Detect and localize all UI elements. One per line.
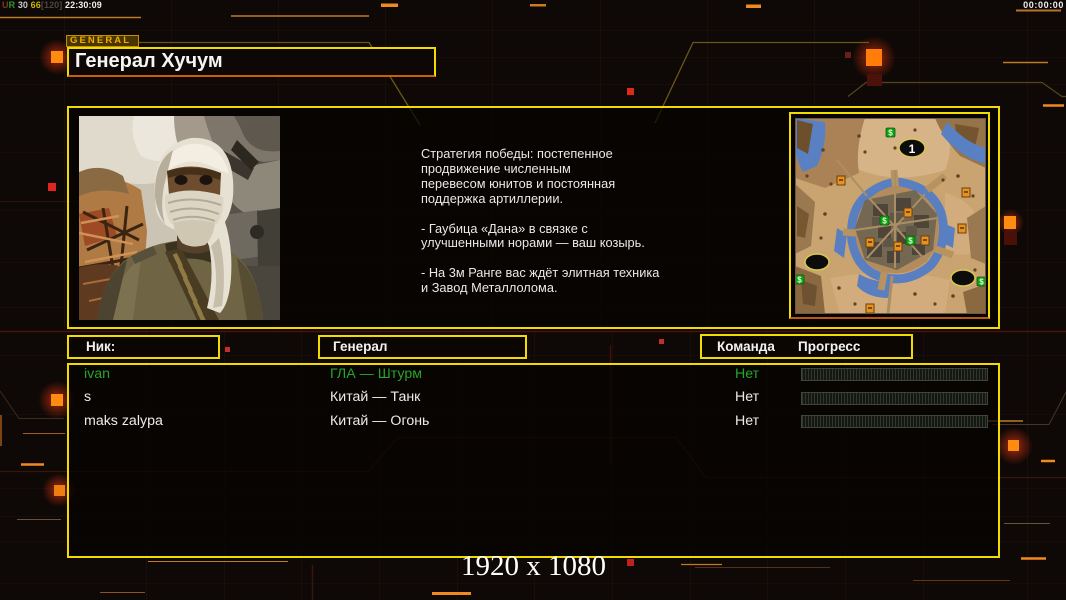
svg-text:$: $ [888, 129, 893, 138]
svg-text:$: $ [797, 276, 802, 285]
svg-text:$: $ [908, 237, 913, 246]
svg-text:1: 1 [909, 142, 916, 156]
svg-text:$: $ [882, 217, 887, 226]
svg-text:$: $ [979, 278, 984, 287]
